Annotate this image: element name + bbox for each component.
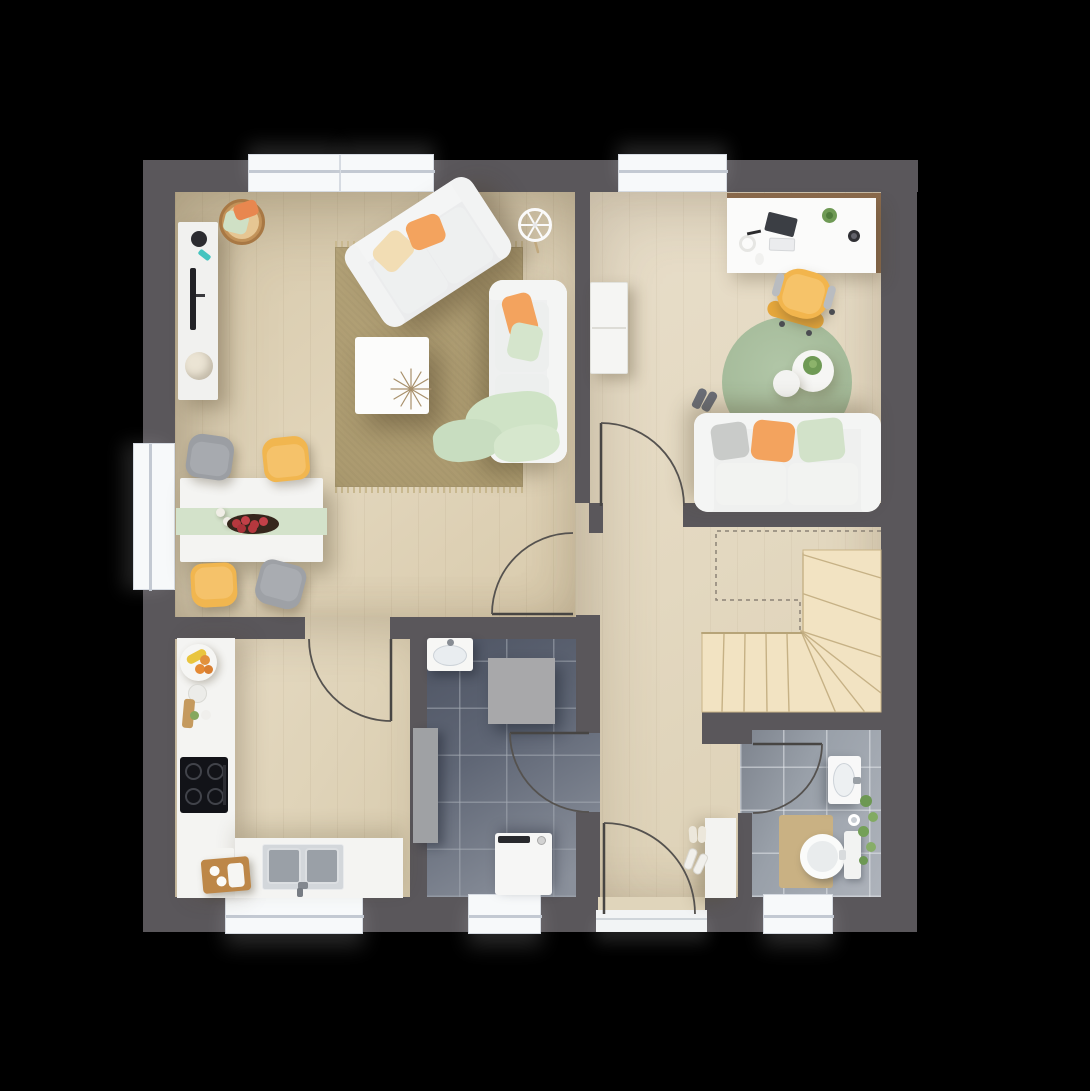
office-loveseat [694, 413, 881, 512]
bath-plant-leaf [858, 826, 869, 837]
toilet-hinge [839, 850, 846, 860]
chair-caster [806, 330, 812, 336]
bath-plant-leaf [868, 812, 878, 822]
utility-sink [427, 638, 473, 671]
sink-basin [833, 763, 855, 797]
seat-cushion [788, 463, 858, 505]
rug-living-fringe-bottom [335, 487, 523, 493]
chair-seat [266, 443, 307, 479]
chair-seat [194, 566, 234, 600]
seat-cushion [716, 463, 786, 505]
window-glass-line [469, 915, 542, 918]
window-glass-line [249, 170, 341, 173]
window-left-dining [133, 443, 175, 590]
slipper [688, 826, 697, 844]
headphones [739, 235, 756, 252]
tv-screen [190, 268, 196, 330]
desk-trim-right [876, 193, 881, 273]
toilet-seat [807, 841, 838, 872]
pillow-orange [750, 419, 796, 463]
sink-basin [433, 645, 467, 666]
tv-stand [196, 294, 205, 297]
entry-threshold [596, 910, 707, 932]
pillow-mint [796, 417, 846, 464]
window-glass-line [149, 444, 152, 591]
wall-kitchen-top [175, 617, 305, 639]
chair-seat [189, 440, 231, 477]
window-bottom-utility [468, 894, 541, 934]
sink-faucet [853, 777, 861, 784]
burner [185, 763, 202, 780]
sink-basin-left [267, 848, 301, 884]
control-strip [223, 765, 226, 805]
burner [185, 788, 202, 805]
kitchen-sink [262, 844, 344, 890]
remote [198, 249, 212, 262]
wall-stairs-south [702, 712, 881, 730]
floor-plan [0, 0, 1090, 1091]
cooktop [180, 757, 228, 813]
window-bottom-kitchen [225, 894, 363, 934]
serving-tray [201, 856, 252, 894]
bath-plant-leaf [859, 856, 868, 865]
mouse [755, 253, 764, 265]
jar-green [190, 711, 199, 720]
desk-plant-center [826, 212, 833, 219]
kitchen-faucet-stem [297, 888, 303, 897]
tv-sideboard [178, 222, 218, 400]
throw-blanket [428, 381, 568, 474]
chair-caster [829, 309, 835, 315]
window-top-office [618, 154, 727, 192]
camera-decor [191, 231, 207, 247]
wardrobe [590, 282, 628, 374]
burner [207, 763, 224, 780]
cup-white [201, 710, 211, 720]
bath-plant-leaf [860, 795, 872, 807]
toilet-tank [844, 831, 861, 879]
orange-fruit [204, 665, 213, 674]
sink-basin-right [305, 848, 339, 884]
threshold-line [596, 918, 707, 920]
desk-cup-inner [851, 233, 857, 239]
dining-chair-yellow-ne [261, 435, 311, 484]
wall-bath-west-2 [738, 813, 752, 897]
apple [248, 524, 257, 533]
wall-jamb-office [589, 503, 603, 533]
bathroom-sink [828, 756, 861, 804]
window-top-living-1 [248, 154, 340, 192]
wall-bath-west-1 [738, 730, 752, 744]
wall-corridor-west-2 [576, 812, 600, 897]
window-glass-line [619, 170, 728, 173]
candlestick-1 [216, 508, 225, 517]
toilet-brush [848, 814, 860, 826]
window-top-living-2 [340, 154, 434, 192]
dining-chair-gray-nw [184, 432, 236, 482]
chair-caster [779, 321, 785, 327]
utility-appliance-unit [488, 658, 555, 724]
papasan-chair [219, 199, 265, 245]
wardrobe-seam [592, 327, 626, 329]
sink-faucet [447, 639, 454, 646]
keyboard [769, 238, 795, 252]
desk [727, 193, 881, 273]
side-table-small [773, 370, 800, 397]
wall-living-hall [575, 192, 590, 503]
vase-flowers [185, 352, 213, 380]
utility-cabinet [413, 728, 438, 843]
dining-chair-yellow-sw [190, 562, 238, 608]
window-glass-line [226, 915, 364, 918]
burner [207, 788, 224, 805]
washing-machine [495, 833, 552, 895]
window-bottom-bath [763, 894, 833, 934]
apple [259, 517, 268, 526]
apple [237, 524, 246, 533]
wall-right [881, 160, 917, 932]
table-plant-highlight [809, 360, 817, 368]
window-glass-line [764, 915, 834, 918]
brush-center [851, 817, 857, 823]
washer-knob [537, 836, 546, 845]
coffee-table [355, 337, 429, 414]
washer-panel [498, 836, 530, 843]
window-glass-line [341, 170, 435, 173]
slipper [698, 826, 707, 843]
loveseat-arm-right [861, 413, 881, 512]
toilet [800, 830, 862, 880]
bath-plant-leaf [866, 842, 876, 852]
tray-towel [227, 862, 245, 887]
pillow-gray [710, 421, 751, 462]
shoe-cabinet [705, 818, 736, 898]
dining-table [180, 478, 323, 562]
